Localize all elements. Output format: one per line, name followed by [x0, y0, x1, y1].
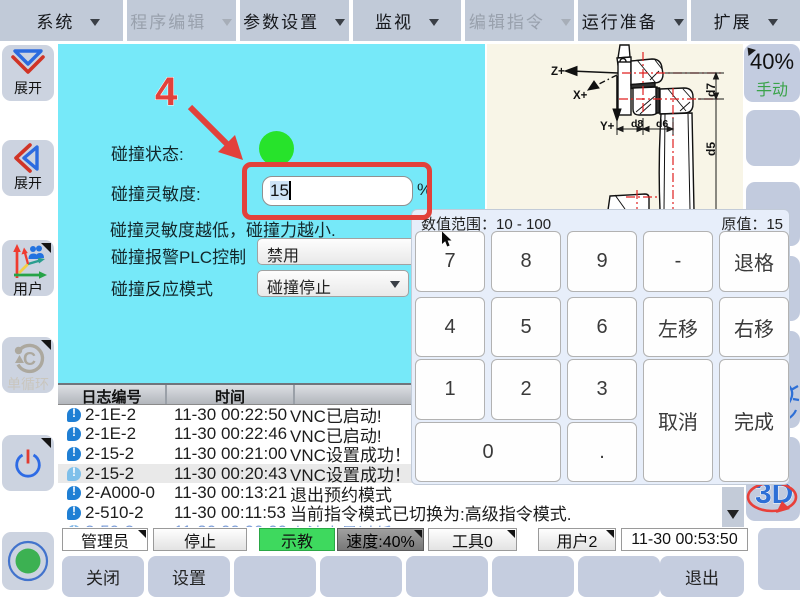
svg-text:d5: d5 — [704, 142, 718, 156]
svg-text:Y+: Y+ — [600, 121, 615, 133]
svg-text:d8: d8 — [631, 118, 643, 130]
svg-text:C: C — [23, 349, 36, 369]
svg-text:4: 4 — [155, 70, 178, 114]
svg-text:X+: X+ — [573, 90, 588, 102]
svg-text:d6: d6 — [656, 118, 668, 130]
svg-text:d7: d7 — [704, 83, 718, 97]
svg-text:Z+: Z+ — [551, 66, 565, 78]
